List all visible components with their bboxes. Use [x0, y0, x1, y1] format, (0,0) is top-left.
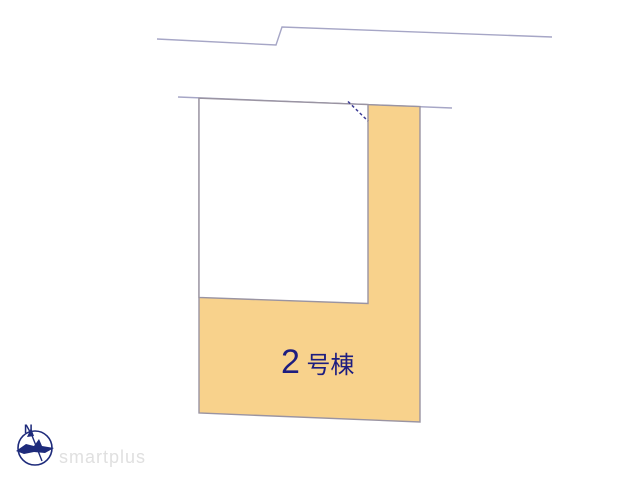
building-footprint: [199, 98, 368, 303]
road-boundary-line: [157, 27, 552, 45]
lot-label-number: 2: [281, 343, 300, 381]
watermark-text: smartplus: [59, 447, 146, 467]
compass-north-label: N: [24, 422, 33, 436]
site-plan-drawing: 2 号棟 N smartplus: [0, 0, 640, 480]
compass-bird-shape: [16, 439, 54, 454]
compass-icon: N: [16, 422, 54, 465]
site-plan-canvas: 2 号棟 N smartplus: [0, 0, 640, 480]
lot-label-suffix: 号棟: [306, 352, 354, 379]
